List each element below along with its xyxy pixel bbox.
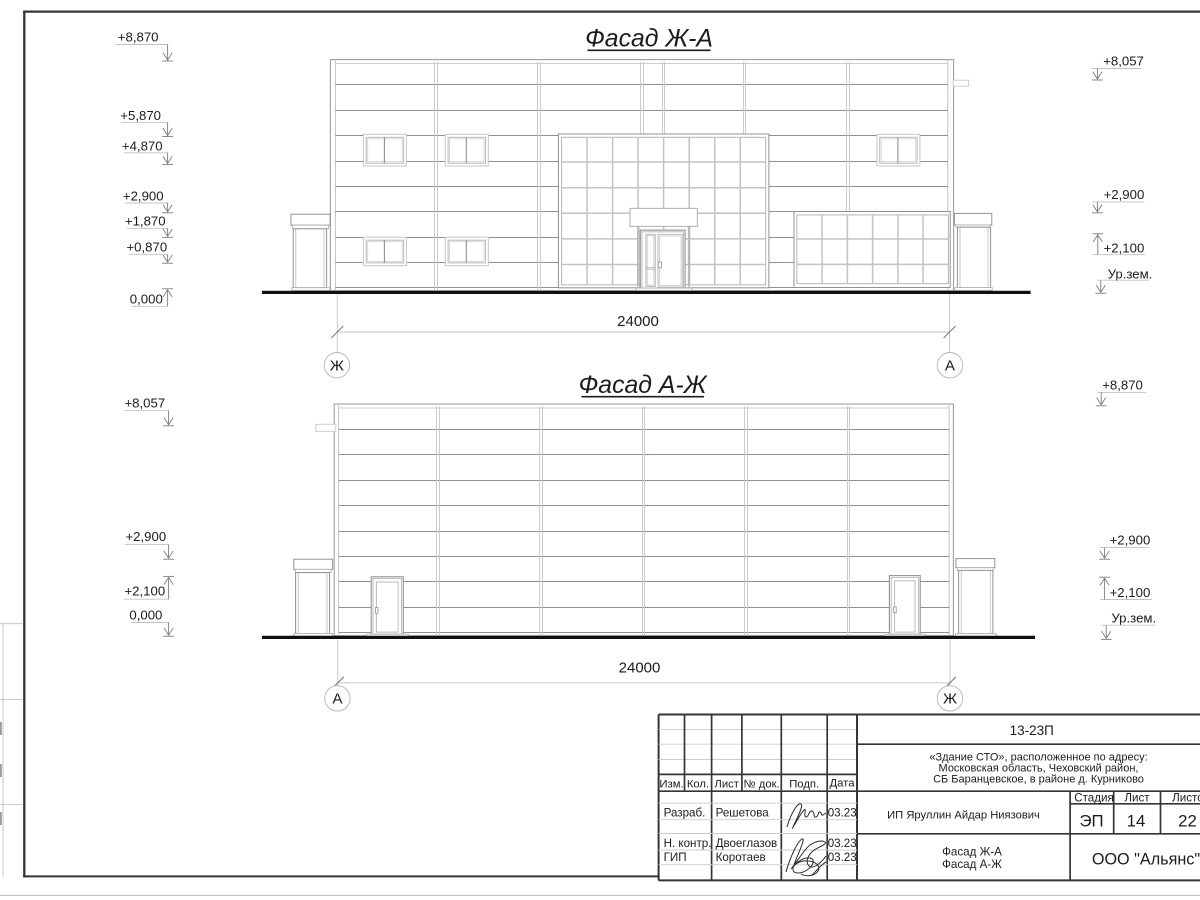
svg-text:Ур.зем.: Ур.зем. (1111, 610, 1156, 625)
svg-text:+1,870: +1,870 (125, 214, 166, 229)
svg-text:0,000: 0,000 (130, 292, 163, 307)
svg-text:ГИП: ГИП (664, 851, 687, 864)
svg-text:+4,870: +4,870 (122, 138, 163, 153)
svg-text:+2,900: +2,900 (123, 188, 164, 203)
svg-text:03.23: 03.23 (828, 851, 857, 864)
svg-text:22: 22 (1178, 812, 1197, 831)
svg-text:ЭП: ЭП (1079, 812, 1103, 831)
svg-text:Кол.: Кол. (687, 779, 709, 791)
svg-text:ИП Яруллин Айдар Ниязович: ИП Яруллин Айдар Ниязович (887, 809, 1040, 821)
svg-text:Изм.: Изм. (659, 779, 683, 791)
svg-text:Стадия: Стадия (1074, 791, 1114, 804)
svg-text:+2,100: +2,100 (1104, 240, 1145, 255)
svg-text:+8,870: +8,870 (1102, 378, 1143, 393)
svg-text:Лист: Лист (1124, 791, 1150, 804)
svg-text:+2,100: +2,100 (124, 584, 165, 599)
svg-text:+8,057: +8,057 (124, 395, 165, 410)
svg-text:Фасад А-Ж: Фасад А-Ж (579, 372, 708, 399)
svg-text:14: 14 (1127, 812, 1146, 831)
svg-text:Фасад Ж-А: Фасад Ж-А (942, 845, 1002, 858)
svg-text:+5,870: +5,870 (120, 108, 161, 123)
svg-text:0,000: 0,000 (129, 607, 162, 622)
svg-text:А: А (945, 357, 956, 374)
svg-text:Фасад А-Ж: Фасад А-Ж (942, 858, 1002, 871)
svg-text:Лист: Лист (714, 779, 739, 791)
svg-text:Ур.зем.: Ур.зем. (1108, 266, 1153, 281)
svg-text:А: А (332, 691, 343, 708)
svg-text:+8,057: +8,057 (1103, 53, 1144, 68)
svg-text:+0,870: +0,870 (126, 240, 167, 255)
svg-text:+2,900: +2,900 (1110, 533, 1151, 548)
svg-text:Фасад Ж-А: Фасад Ж-А (585, 26, 713, 53)
svg-text:Ж: Ж (330, 357, 344, 374)
svg-text:СБ Баранцевское, в районе д. К: СБ Баранцевское, в районе д. Курниково (933, 774, 1144, 786)
svg-text:Разраб.: Разраб. (664, 807, 706, 820)
svg-text:24000: 24000 (617, 313, 659, 330)
svg-text:Листов: Листов (1172, 791, 1200, 804)
svg-text:Подп.: Подп. (789, 779, 819, 791)
svg-text:+2,100: +2,100 (1110, 585, 1151, 600)
svg-text:№ док.: № док. (743, 779, 779, 791)
svg-text:+8,870: +8,870 (118, 30, 159, 45)
svg-text:Ж: Ж (943, 691, 957, 708)
svg-text:Дата: Дата (829, 778, 855, 790)
svg-text:03.23: 03.23 (828, 807, 857, 820)
svg-text:Н. контр.: Н. контр. (664, 837, 712, 850)
svg-text:24000: 24000 (619, 659, 661, 676)
svg-text:03.23: 03.23 (828, 837, 857, 850)
svg-text:+2,900: +2,900 (125, 529, 166, 544)
svg-text:13-23П: 13-23П (1010, 723, 1054, 738)
svg-text:ООО "Альянс": ООО "Альянс" (1092, 850, 1200, 868)
svg-text:+2,900: +2,900 (1104, 187, 1145, 202)
svg-text:Решетова: Решетова (716, 807, 770, 820)
svg-text:Коротаев: Коротаев (716, 851, 766, 864)
svg-text:Двоеглазов: Двоеглазов (716, 837, 778, 850)
